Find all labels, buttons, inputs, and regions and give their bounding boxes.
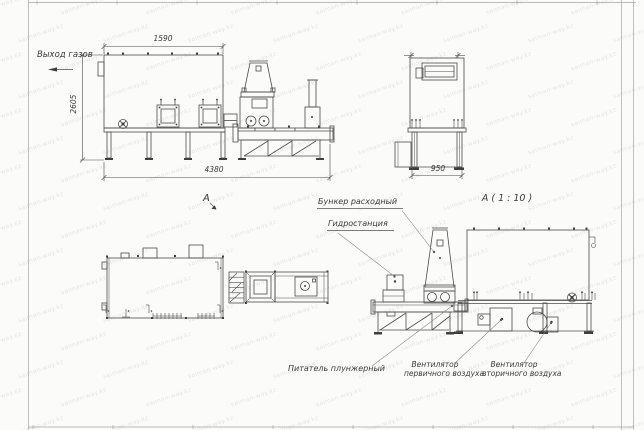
roof-bolts-rear — [473, 228, 588, 230]
access-hatch-2 — [199, 99, 221, 127]
lifting-hook — [589, 237, 596, 248]
feeder-assembly-side — [224, 61, 334, 160]
support-frame-side — [104, 128, 227, 160]
dim-total-length: 4380 — [196, 166, 232, 174]
secondary-fan-callout: Вентилятор вторичного воздуха — [482, 361, 546, 378]
plunger-feeder-rear — [371, 299, 468, 316]
callout-leaders — [338, 211, 552, 367]
dim-end-view-width: 950 — [424, 165, 452, 173]
furnace-body-end — [410, 58, 464, 128]
view-a-direction-arrow — [210, 203, 217, 210]
access-hatch-1 — [157, 99, 179, 127]
top-dimension-marks — [404, 52, 465, 58]
gas-outlet-arrow — [48, 67, 73, 71]
plunger-feeder-callout: Питатель плунжерный — [288, 365, 385, 374]
ash-box-end — [395, 142, 411, 167]
roof-bolts — [107, 53, 219, 55]
gas-outlet-flange — [98, 62, 104, 76]
chimney-stub-2 — [189, 245, 203, 258]
hydraulic-unit-plan — [295, 277, 317, 296]
section-marks — [103, 262, 223, 317]
feed-hopper-rear — [424, 228, 455, 303]
flex-coupling-plan — [229, 272, 244, 303]
hydraulic-station-callout: Гидростанция — [327, 220, 394, 231]
chimney-stub-1 — [143, 248, 157, 258]
gas-outlet-window — [416, 63, 457, 80]
feeder-trough-plan — [275, 272, 328, 302]
secondary-air-fan — [527, 308, 558, 332]
view-a-marker-label: A — [203, 193, 210, 204]
truss-support-side — [238, 140, 324, 160]
drawing-sheet: saiman-way.kzsaiman-way.kzsaiman-way.kzs… — [0, 0, 644, 430]
feed-hopper-side — [242, 61, 275, 92]
hydraulic-station-rear — [383, 275, 404, 302]
furnace-body-rear — [467, 230, 589, 300]
handwheel-valve — [119, 120, 128, 129]
view-a-scaled-label: А ( 1 : 10 ) — [465, 194, 549, 204]
primary-air-fan — [478, 308, 512, 331]
primary-fan-callout-line2: первичного воздуха — [404, 370, 466, 379]
end-view-a — [395, 52, 466, 179]
side-view-a — [48, 43, 334, 210]
dim-furnace-width: 1590 — [147, 35, 179, 43]
plan-view — [102, 245, 329, 319]
truss-support-rear — [374, 312, 454, 335]
secondary-fan-callout-line2: вторичного воздуха — [482, 370, 546, 379]
anchor-bolts-end — [411, 119, 463, 128]
hopper-plan — [246, 272, 275, 302]
hydraulic-pedestal-side — [305, 80, 320, 128]
support-frame-rear — [454, 301, 594, 335]
hopper-callout: Бункер расходный — [317, 198, 403, 209]
rear-side-view — [371, 228, 596, 335]
furnace-body-plan — [107, 258, 223, 318]
gas-outlet-label: Выход газов — [37, 51, 93, 60]
furnace-body-side — [98, 53, 227, 161]
primary-fan-callout: Вентилятор первичного воздуха — [404, 361, 466, 378]
dimension-lines-view-a — [80, 43, 333, 181]
dim-furnace-height: 2605 — [70, 92, 78, 116]
